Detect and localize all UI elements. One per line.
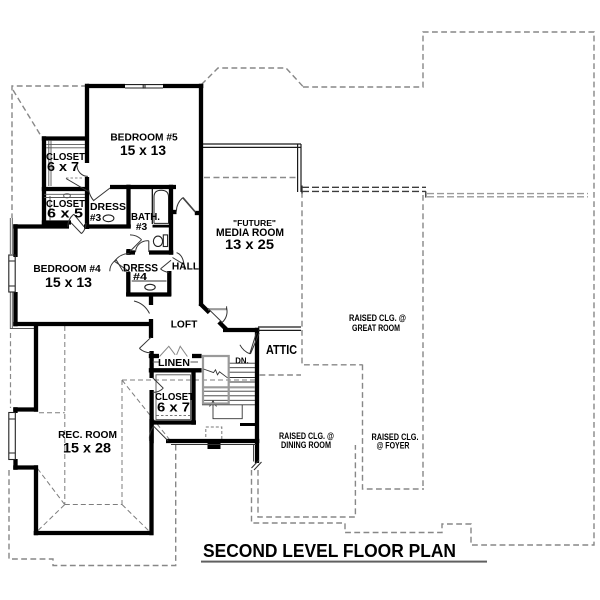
svg-text:6 x 7: 6 x 7 [157,400,190,415]
svg-text:15 x 28: 15 x 28 [63,441,111,456]
svg-text:#3: #3 [136,222,148,233]
svg-text:6 x 7: 6 x 7 [47,160,79,174]
svg-text:#3: #3 [90,213,102,224]
svg-text:@ FOYER: @ FOYER [377,440,411,450]
svg-text:DN.: DN. [235,357,248,366]
svg-text:BEDROOM #4: BEDROOM #4 [33,264,101,275]
svg-text:ATTIC: ATTIC [266,343,297,357]
svg-text:6 x 5: 6 x 5 [47,207,83,221]
svg-text:HALL: HALL [172,262,199,273]
svg-text:SECOND LEVEL FLOOR PLAN: SECOND LEVEL FLOOR PLAN [203,541,456,562]
svg-text:13 x 25: 13 x 25 [225,237,274,252]
svg-text:LINEN: LINEN [158,358,190,369]
svg-text:RAISED CLG. @: RAISED CLG. @ [349,313,406,323]
svg-text:15 x 13: 15 x 13 [120,143,166,158]
svg-text:LOFT: LOFT [171,320,198,331]
svg-text:#4: #4 [133,272,147,283]
svg-text:GREAT ROOM: GREAT ROOM [352,323,400,333]
svg-text:15 x 13: 15 x 13 [45,275,92,290]
svg-text:DINING ROOM: DINING ROOM [281,440,331,450]
svg-text:BEDROOM #5: BEDROOM #5 [110,133,178,144]
svg-text:REC. ROOM: REC. ROOM [58,430,117,441]
svg-text:DRESS: DRESS [90,202,126,213]
